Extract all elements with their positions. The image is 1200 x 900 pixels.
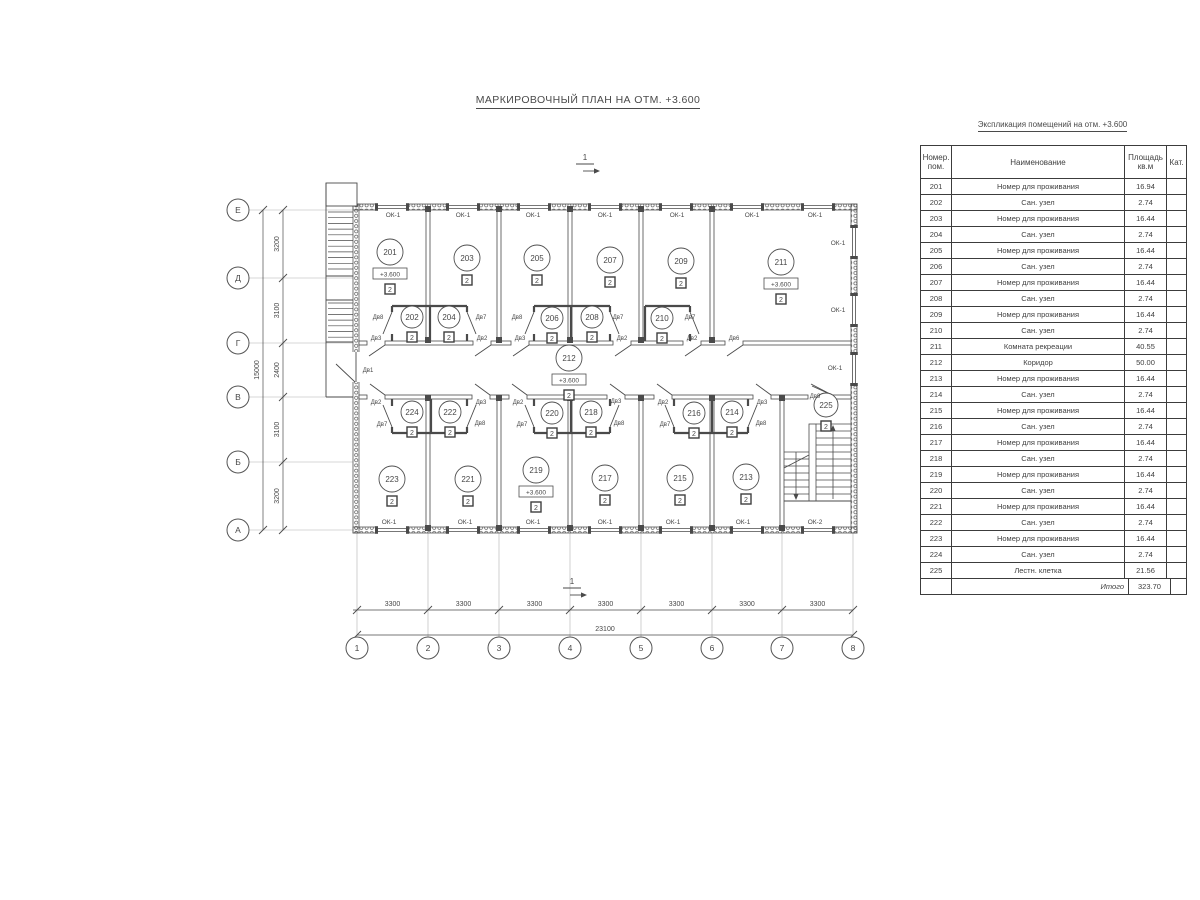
wall-pier [709,206,715,212]
grid-bubble-label: В [235,392,241,402]
window-gap [659,203,693,211]
level-mark: +3.600 [380,272,400,279]
window-type-label: ОК-1 [458,519,473,526]
window-gap [730,203,764,211]
room-number: 223 [385,475,399,484]
door-leaf [383,312,392,334]
window-jamb [477,203,480,211]
door-type-label: Дв7 [613,315,624,321]
category-mark: 2 [535,278,539,285]
door-leaf [615,345,631,356]
corridor-wall [359,395,367,399]
grid-bubble-label: 2 [426,643,431,653]
partition-wall [780,399,784,527]
window-jamb [850,352,858,355]
room-number: 206 [545,314,559,323]
dim-text: 3100 [274,422,281,438]
window-jamb [548,526,551,534]
window-type-label: ОК-1 [828,365,843,372]
door-type-label: Дв2 [477,336,488,342]
door-type-label: Дв2 [371,400,382,406]
room-number: 210 [655,314,669,323]
dim-text: 3200 [274,236,281,252]
window-gap [850,352,858,386]
window-jamb [832,203,835,211]
window-type-label: ОК-1 [831,307,846,314]
window-jamb [659,526,662,534]
room-number: 204 [442,313,456,322]
door-leaf [727,345,743,356]
room-number: 201 [383,248,397,257]
door-type-label: Дв6 [729,336,740,342]
door-type-label: Дв8 [512,315,523,321]
category-mark: 2 [779,297,783,304]
window-gap [446,203,480,211]
window-gap [517,526,551,534]
room-number: 224 [405,408,419,417]
category-mark: 2 [603,498,607,505]
level-mark: +3.600 [526,490,546,497]
level-mark: +3.600 [771,282,791,289]
window-gap [659,526,693,534]
wall-pier [779,525,785,531]
grid-bubble-label: 5 [639,643,644,653]
room-tag-222: 2222 [439,401,461,437]
wall-pier [709,337,715,343]
door-leaf [657,384,672,395]
door-leaf [475,345,491,356]
window-jamb [375,203,378,211]
door-leaf [513,345,529,356]
floor-plan-svg: 3300330033003300330033003300231001234567… [0,0,1200,900]
partition-wall [639,399,643,527]
window-jamb [619,203,622,211]
grid-bubble-label: 6 [710,643,715,653]
category-mark: 2 [448,430,452,437]
door-type-label: Дв3 [611,399,622,405]
door-leaf [512,384,527,395]
window-jamb [446,203,449,211]
door-type-label: Дв8 [373,315,384,321]
room-tag-224: 2242 [401,401,423,437]
wall-pier [425,206,431,212]
door-type-label: Дв2 [658,400,669,406]
dim-text: 3100 [274,303,281,319]
category-mark: 2 [679,281,683,288]
door-leaf [475,384,490,395]
category-mark: 2 [589,430,593,437]
arrow-head [594,168,600,173]
room-number: 221 [461,475,475,484]
window-jamb [850,225,858,228]
category-mark: 2 [390,499,394,506]
window-jamb [375,526,378,534]
window-jamb [690,203,693,211]
window-type-label: ОК-2 [808,519,823,526]
window-type-label: ОК-1 [382,519,397,526]
door-type-label: Дв2 [513,400,524,406]
corridor-wall [743,341,851,345]
window-type-label: ОК-1 [526,212,541,219]
window-gap [850,293,858,327]
room-number: 220 [545,409,559,418]
room-number: 216 [687,409,701,418]
window-jamb [659,203,662,211]
window-type-label: ОК-1 [745,212,760,219]
wall-pier [638,206,644,212]
door-type-label: Дв2 [687,336,698,342]
window-jamb [517,526,520,534]
window-jamb [406,526,409,534]
category-mark: 2 [410,430,414,437]
dim-text: 3300 [598,601,614,608]
door-type-label: Дв9 [810,394,821,400]
window-type-label: ОК-1 [670,212,685,219]
dim-text: 3300 [810,601,826,608]
category-mark: 2 [550,336,554,343]
wall-pier [567,525,573,531]
section-mark: 1 [576,153,600,174]
window-jamb [588,526,591,534]
window-jamb [730,526,733,534]
window-type-label: ОК-1 [598,212,613,219]
room-tag-208: 2082 [581,306,603,342]
section-mark-label: 1 [570,577,575,586]
door-type-label: Дв7 [476,315,487,321]
window-gap [730,526,764,534]
wall-pier [638,395,644,401]
room-tag-209: 2092 [668,248,694,288]
corridor-wall [771,395,808,399]
door-type-label: Дв2 [617,336,628,342]
section-mark-label: 1 [583,153,588,162]
room-number: 203 [460,254,474,263]
door-type-label: Дв3 [757,400,768,406]
window-jamb [850,383,858,386]
room-tag-219: 219+3.6002 [519,457,553,512]
room-tag-210: 2102 [651,307,673,343]
room-tag-217: 2172 [592,465,618,505]
stair-stringer [809,424,816,501]
window-gap [588,203,622,211]
window-jamb [446,526,449,534]
window-jamb [850,324,858,327]
room-tag-203: 2032 [454,245,480,285]
category-mark: 2 [534,505,538,512]
window-type-label: ОК-1 [526,519,541,526]
partition-wall [497,399,501,527]
category-mark: 2 [590,335,594,342]
level-mark: +3.600 [559,378,579,385]
room-tag-207: 2072 [597,247,623,287]
window-gap [375,203,409,211]
stair-landing [326,183,357,206]
door-leaf [369,345,385,356]
window-jamb [730,203,733,211]
wall-pier [496,525,502,531]
category-mark: 2 [744,497,748,504]
room-tag-212: 212+3.6002 [552,345,586,400]
room-tag-221: 2212 [455,466,481,506]
partition-wall [710,210,714,339]
window-type-label: ОК-1 [808,212,823,219]
door-leaf [685,345,701,356]
window-jamb [761,203,764,211]
window-type-label: ОК-1 [831,240,846,247]
room-tag-213: 2132 [733,464,759,504]
partition-wall [497,210,501,339]
room-number: 208 [585,313,599,322]
window-jamb [801,526,804,534]
room-number: 222 [443,408,457,417]
door-leaf [467,312,476,334]
room-number: 209 [674,257,688,266]
window-gap [446,526,480,534]
room-number: 212 [562,354,576,363]
category-mark: 2 [824,424,828,431]
grid-bubble-label: Г [236,338,241,348]
window-jamb [761,526,764,534]
window-gap [850,225,858,259]
room-number: 213 [739,473,753,482]
window-jamb [850,293,858,296]
corridor-wall [359,341,367,345]
wall-pier [779,395,785,401]
window-type-label: ОК-1 [736,519,751,526]
door-type-label: Дв7 [685,315,696,321]
door-type-label: Дв1 [363,368,374,374]
window-jamb [832,526,835,534]
grid-bubble-label: 4 [568,643,573,653]
section-mark: 1 [563,577,587,598]
dim-text: 3300 [385,601,401,608]
door-type-label: Дв3 [371,336,382,342]
dim-total-text: 23100 [595,626,615,633]
drawing-sheet: МАРКИРОВОЧНЫЙ ПЛАН НА ОТМ. +3.600 Экспли… [0,0,1200,900]
room-tag-204: 2042 [438,306,460,342]
category-mark: 2 [660,336,664,343]
window-gap [801,203,835,211]
room-number: 225 [819,401,833,410]
category-mark: 2 [730,430,734,437]
door-type-label: Дв3 [476,400,487,406]
window-jamb [548,203,551,211]
room-tag-201: 201+3.6002 [373,239,407,294]
window-type-label: ОК-1 [456,212,471,219]
wall-pier [496,337,502,343]
window-type-label: ОК-1 [598,519,613,526]
dim-text: 3300 [527,601,543,608]
grid-bubble-label: 1 [355,643,360,653]
room-number: 215 [673,474,687,483]
room-number: 214 [725,408,739,417]
window-jamb [619,526,622,534]
window-jamb [850,256,858,259]
partition-wall [639,210,643,339]
arrow-head [793,494,798,500]
dim-text: 3300 [739,601,755,608]
room-number: 211 [775,258,788,267]
room-tag-214: 2142 [721,401,743,437]
category-mark: 2 [550,431,554,438]
category-mark: 2 [410,335,414,342]
wall-pier [709,525,715,531]
room-tag-218: 2182 [580,401,602,437]
window-gap [517,203,551,211]
door-leaf [610,384,625,395]
room-tag-206: 2062 [541,307,563,343]
door-type-label: Дв7 [660,422,671,428]
door-type-label: Дв8 [756,421,767,427]
dim-text: 3300 [669,601,685,608]
room-tag-215: 2152 [667,465,693,505]
category-mark: 2 [567,393,571,400]
dim-text: 3300 [456,601,472,608]
window-type-label: ОК-1 [666,519,681,526]
category-mark: 2 [447,335,451,342]
room-tag-205: 2052 [524,245,550,285]
door-leaf [525,312,534,334]
room-tag-202: 2022 [401,306,423,342]
wall-pier [425,525,431,531]
arrow-head [581,592,587,597]
room-number: 207 [603,256,617,265]
grid-bubble-label: 7 [780,643,785,653]
room-number: 217 [598,474,612,483]
door-leaf [756,384,771,395]
grid-bubble-label: Б [235,457,241,467]
partition-wall [426,399,430,527]
wall-pier [638,525,644,531]
room-number: 219 [529,466,543,475]
category-mark: 2 [466,499,470,506]
wall-pier [496,395,502,401]
window-jamb [588,203,591,211]
dim-text: 2400 [274,362,281,378]
door-type-label: Дв7 [517,422,528,428]
category-mark: 2 [678,498,682,505]
grid-bubble-label: А [235,525,241,535]
window-jamb [517,203,520,211]
category-mark: 2 [608,280,612,287]
door-type-label: Дв8 [475,421,486,427]
grid-bubble-label: 3 [497,643,502,653]
room-tag-223: 2232 [379,466,405,506]
door-leaf [370,384,385,395]
category-mark: 2 [465,278,469,285]
grid-bubble-label: Д [235,273,241,283]
window-gap [801,526,835,534]
room-number: 202 [405,313,419,322]
room-number: 205 [530,254,544,263]
window-jamb [801,203,804,211]
window-gap [375,526,409,534]
window-jamb [477,526,480,534]
category-mark: 2 [692,431,696,438]
door-type-label: Дв8 [614,421,625,427]
dim-total-text: 15000 [254,360,261,380]
grid-bubble-label: 8 [851,643,856,653]
door-type-label: Дв3 [515,336,526,342]
wall-pier [496,206,502,212]
wall-pier [638,337,644,343]
dim-text: 3200 [274,488,281,504]
window-jamb [406,203,409,211]
grid-bubble-label: Е [235,205,241,215]
wall-pier [567,206,573,212]
window-type-label: ОК-1 [386,212,401,219]
category-mark: 2 [388,287,392,294]
window-jamb [690,526,693,534]
door-type-label: Дв7 [377,422,388,428]
room-number: 218 [584,408,598,417]
window-gap [588,526,622,534]
room-tag-211: 211+3.6002 [764,249,798,304]
